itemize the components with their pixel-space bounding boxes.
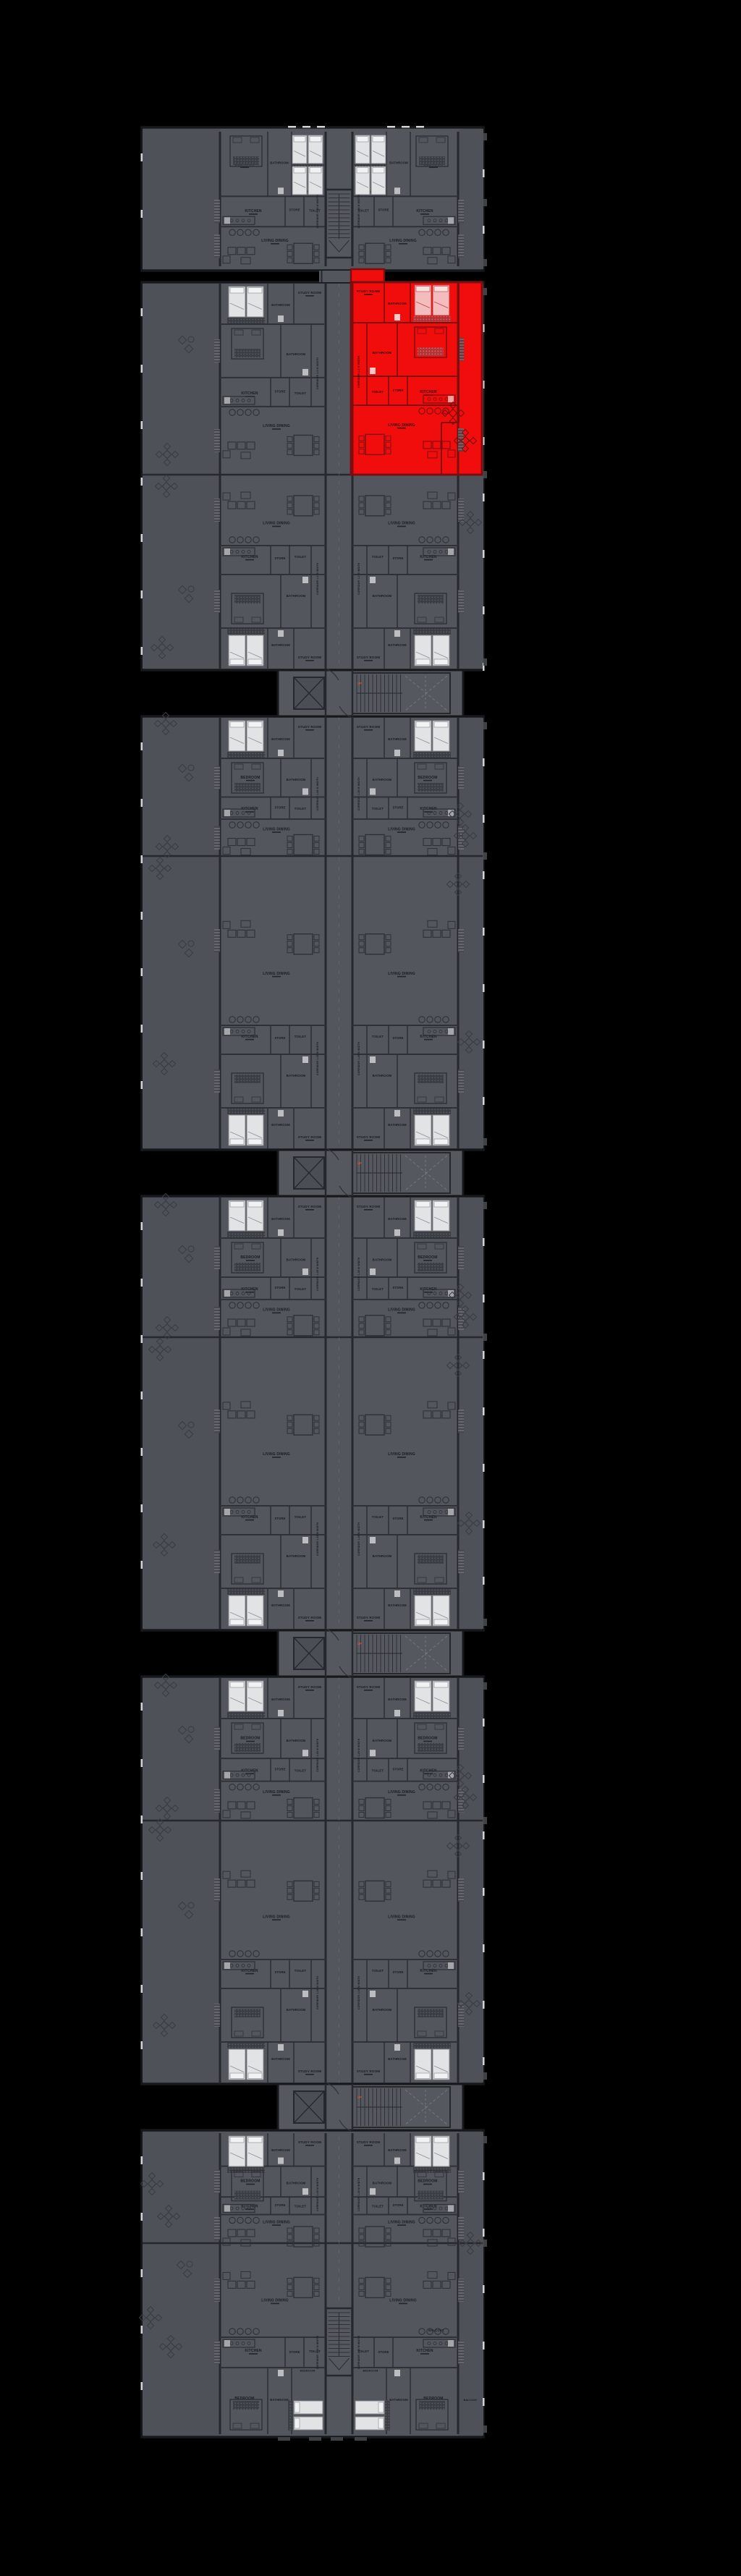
window-tick (141, 1391, 143, 1399)
room-label: BATHROOM (271, 1217, 290, 1221)
balcony-divider (483, 471, 487, 478)
dimension-text (249, 213, 258, 215)
stair-up-label: UP (357, 1161, 362, 1165)
window-tick (141, 590, 143, 598)
room-label: CORRIDOR 1.28 M WIDTH (316, 2336, 319, 2370)
sink-icon (370, 368, 376, 374)
balcony-divider (483, 852, 487, 860)
sink-icon (394, 1110, 400, 1117)
dimension-text (364, 1690, 373, 1691)
window-icon (458, 1878, 464, 1902)
dimension-text (305, 2074, 314, 2075)
window-tick (141, 2041, 143, 2049)
balcony-divider (483, 1682, 487, 1690)
balcony-divider (483, 1619, 487, 1626)
dimension-text (245, 1973, 254, 1975)
window-icon (214, 1069, 220, 1093)
room-label: STUDY ROOM (298, 2140, 322, 2144)
window-icon (458, 1069, 464, 1093)
rug (227, 752, 265, 758)
window-icon (214, 929, 220, 952)
dimension-text (399, 2303, 407, 2305)
rug (227, 629, 265, 635)
window-icon (458, 2279, 464, 2302)
room-label: TOILET (372, 2204, 384, 2208)
window-tick (141, 210, 143, 218)
balcony-divider (483, 288, 487, 295)
balcony-divider (483, 2240, 487, 2247)
dimension-text (397, 1795, 406, 1796)
dimension-text (305, 295, 314, 297)
room-label: STUDY ROOM (357, 656, 381, 659)
window-tick (483, 1775, 485, 1783)
stair-core: UP (278, 669, 463, 717)
window-icon (214, 2170, 220, 2193)
window-tick (141, 1872, 143, 1880)
floor-section-s0: BEDROOMBATHROOMBEDROOMTOILETSTOREKITCHEN… (141, 127, 488, 271)
dimension-text (397, 1313, 406, 1314)
room-label: CORRIDOR 1.2 M WIDTH (316, 357, 319, 390)
sink-icon (302, 1750, 308, 1756)
rug (413, 1232, 451, 1237)
room-label: LIVING DINING (263, 424, 290, 428)
room-label: TOILET (295, 807, 307, 810)
dimension-text (246, 1260, 255, 1261)
rug (227, 318, 265, 323)
room-label: BATHROOM (287, 1554, 306, 1558)
room-label: STORE (392, 556, 403, 560)
room-label: BATHROOM (271, 737, 290, 741)
dimension-text (397, 428, 406, 429)
rug (413, 752, 451, 758)
stair-up-label: UP (357, 1642, 362, 1645)
stair-up-label: UP (357, 682, 362, 685)
dimension-text (364, 2074, 373, 2075)
window-icon (214, 1789, 220, 1813)
window-icon (214, 235, 220, 258)
room-label: LIVING DINING (388, 1915, 415, 1919)
sink-icon (370, 1750, 376, 1756)
window-tick (141, 1816, 143, 1823)
window-icon (214, 766, 220, 789)
window-tick (141, 2382, 143, 2390)
window-tick (141, 1928, 143, 1936)
room-label: TOILET (372, 1768, 384, 1772)
room-label: BATHROOM (271, 2057, 290, 2061)
room-label: LIVING DINING (263, 1452, 290, 1457)
window-tick (483, 1719, 485, 1726)
window-tick (141, 855, 143, 863)
dimension-text (272, 1919, 281, 1920)
room-label: LIVING DINING (388, 1790, 415, 1795)
window-tick (141, 799, 143, 807)
dimension-text (246, 2184, 255, 2185)
room-label: BATHROOM (271, 1603, 290, 1607)
sink-icon (394, 1590, 400, 1597)
dimension-text (364, 1209, 373, 1211)
sink-icon (394, 1229, 400, 1236)
window-icon (214, 2341, 220, 2364)
window-tick (402, 126, 410, 128)
entrance-step (278, 2437, 290, 2441)
dimension-text (399, 243, 407, 245)
room-label: STUDY ROOM (357, 2069, 381, 2073)
room-label: TOILET (295, 1768, 307, 1772)
sink-icon (302, 1268, 308, 1275)
room-label: BEDROOM (423, 2397, 443, 2401)
window-tick (483, 1520, 485, 1528)
window-icon (214, 1727, 220, 1750)
room-label: BATHROOM (373, 778, 392, 781)
room-label: BEDROOM (418, 776, 437, 780)
room-label: CORRIDOR 1.28 M WIDTH (316, 777, 319, 811)
dimension-text (305, 1209, 314, 1211)
sink-icon (278, 630, 284, 637)
sink-icon (278, 750, 284, 756)
window-tick (141, 912, 143, 920)
sink-icon (278, 1590, 284, 1597)
sink-icon (394, 2044, 400, 2051)
dimension-text (246, 1741, 255, 1742)
window-icon (214, 339, 220, 363)
rug (413, 2043, 451, 2048)
room-label: BATHROOM (287, 2008, 306, 2012)
room-label: CORRIDOR 1.28 M WIDTH (316, 1041, 319, 1075)
sink-icon (370, 788, 376, 795)
room-label: STORE (274, 2203, 285, 2207)
window-icon (458, 1246, 464, 1269)
room-label: STUDY ROOM (357, 1205, 381, 1208)
dimension-text (305, 660, 314, 661)
room-label: BATHROOM (373, 1739, 392, 1742)
dimension-text (272, 976, 281, 978)
window-tick (483, 984, 485, 992)
staircase-icon (326, 2308, 352, 2376)
room-label: BATHROOM (287, 2181, 306, 2185)
window-tick (141, 1504, 143, 1512)
window-tick (483, 1238, 485, 1246)
dimension-text (272, 1457, 281, 1458)
room-label: BATHROOM (373, 2181, 392, 2185)
window-tick (141, 308, 143, 316)
dimension-text (272, 1795, 281, 1796)
room-label: CORRIDOR 1.28 M WIDTH (357, 777, 360, 811)
window-tick (317, 126, 325, 128)
dimension-text (424, 559, 433, 561)
room-label: CORRIDOR 1.28 M WIDTH (316, 1522, 319, 1556)
dimension-text (364, 1620, 373, 1622)
room-label: BEDROOM (240, 1255, 260, 1260)
room-label: BATHROOM (271, 1123, 290, 1127)
room-label: BATHROOM (373, 351, 392, 355)
room-label: BATHROOM (388, 1123, 407, 1127)
window-tick (483, 2057, 485, 2065)
dimension-text (272, 526, 281, 528)
balcony-divider (483, 1138, 487, 1145)
room-label: CORRIDOR 1.28 M WIDTH (357, 1738, 360, 1772)
terrace (143, 1678, 220, 2083)
balcony-divider (483, 1817, 487, 1824)
room-label: CORRIDOR 1.28 M WIDTH (357, 1257, 360, 1291)
rug (413, 1589, 451, 1595)
room-label: TOILET (372, 390, 384, 394)
dimension-text (397, 526, 406, 528)
room-label: STORE (392, 1286, 403, 1289)
window-tick (483, 1041, 485, 1048)
room-label: BATHROOM (388, 2057, 407, 2061)
dimension-text (420, 213, 429, 215)
window-tick (141, 534, 143, 542)
rug (227, 1712, 265, 1718)
room-label: CORRIDOR 1.28 M WIDTH (357, 1975, 360, 2009)
room-label: LIVING DINING (388, 1308, 415, 1313)
room-label: STUDY ROOM (357, 289, 381, 293)
sink-icon (370, 2188, 376, 2195)
room-label: BALCONY (464, 2399, 478, 2402)
room-label: TOILET (372, 1035, 384, 1038)
room-label: STORE (274, 556, 285, 560)
balcony-divider (483, 1334, 487, 1341)
window-icon (214, 1550, 220, 1573)
dimension-text (397, 976, 406, 978)
elevator-icon (294, 677, 324, 709)
balcony-divider (483, 658, 487, 666)
window-tick (483, 1577, 485, 1585)
window-tick (483, 2398, 485, 2406)
room-label: STUDY ROOM (298, 291, 322, 295)
room-label: CORRIDOR 1.28 M WIDTH (316, 1257, 319, 1291)
selected-apartment-highlight[interactable]: STUDY ROOMBATHROOMBATHROOMBEDROOMTOILETS… (351, 269, 482, 475)
room-label: STORE (274, 1768, 285, 1771)
window-icon (458, 235, 464, 258)
room-label: LIVING DINING (388, 2220, 415, 2224)
window-tick (483, 2001, 485, 2009)
balcony-divider (483, 199, 487, 206)
room-label: STUDY ROOM (298, 656, 322, 659)
room-label: CORRIDOR 1.2 M WIDTH (316, 562, 319, 595)
window-tick (141, 2213, 143, 2221)
room-label: CORRIDOR 1.28 M WIDTH (316, 1975, 319, 2009)
window-icon (458, 929, 464, 952)
sink-icon (278, 187, 284, 194)
floor-section-s2: STUDY ROOMBATHROOMBATHROOMBEDROOMTOILETS… (141, 712, 488, 1150)
sink-icon (394, 630, 400, 637)
balcony-divider (483, 1202, 487, 1209)
window-tick (483, 871, 485, 879)
window-tick (483, 1295, 485, 1302)
dimension-text (305, 1140, 314, 1141)
rug (227, 1232, 265, 1237)
sink-icon (302, 2188, 308, 2195)
sink-icon (394, 750, 400, 756)
room-label: STUDY ROOM (357, 1135, 381, 1139)
window-icon (214, 590, 220, 613)
room-label: BATHROOM (388, 643, 407, 647)
room-label: STORE (274, 1517, 285, 1520)
room-label: TOILET (295, 2204, 307, 2208)
room-label: LIVING DINING (263, 522, 290, 526)
window-tick (141, 2326, 143, 2334)
room-label: KITCHEN (241, 2204, 258, 2208)
room-label: STORE (392, 1517, 403, 1520)
sink-icon (394, 314, 400, 321)
window-icon (458, 1789, 464, 1813)
room-label: CORRIDOR 1.28 M WIDTH (316, 2177, 319, 2211)
dimension-text (272, 428, 281, 430)
room-label: CORRIDOR 1.2 M WIDTH (357, 356, 360, 389)
room-label: BATHROOM (373, 2008, 392, 2012)
window-tick (483, 815, 485, 823)
room-label: STUDY ROOM (298, 725, 322, 729)
dimension-text (397, 1457, 406, 1458)
room-label: LIVING DINING (263, 1915, 290, 1919)
balcony-divider (483, 2425, 487, 2433)
window-tick (288, 126, 296, 128)
rug (227, 2043, 265, 2048)
room-label: TOILET (372, 1287, 384, 1291)
terrace (143, 1198, 220, 1629)
room-label: LIVING DINING (261, 2299, 289, 2303)
room-label: CORRIDOR 1.28 M WIDTH (316, 195, 319, 229)
dimension-text (424, 1039, 433, 1041)
room-label: BEDROOM (240, 1737, 260, 1741)
window-icon (214, 2217, 220, 2240)
room-label: LIVING DINING (388, 423, 415, 428)
dimension-text (272, 1313, 281, 1314)
window-tick (141, 2269, 143, 2277)
sink-icon (370, 1537, 376, 1543)
room-label: STORE (289, 2350, 300, 2354)
sink-icon (278, 2158, 284, 2164)
window-icon (214, 2004, 220, 2027)
dimension-text (271, 2303, 279, 2305)
room-label: CORRIDOR 1.28 M WIDTH (357, 195, 360, 229)
room-label: CORRIDOR 1.2 M WIDTH (357, 562, 360, 595)
window-tick (483, 1831, 485, 1839)
balcony-divider (483, 259, 487, 266)
room-label: LIVING DINING (263, 972, 290, 976)
room-label: STORE (274, 390, 285, 394)
window-tick (141, 1222, 143, 1230)
window-tick (141, 1335, 143, 1343)
rug (413, 316, 451, 322)
window-tick (483, 606, 485, 614)
room-label: KITCHEN (245, 209, 262, 213)
floor-section-s3: STUDY ROOMBATHROOMBATHROOMBEDROOMTOILETS… (141, 1193, 488, 1630)
room-label: STORE (392, 805, 403, 809)
floor-section-s5: STUDY ROOMBATHROOMBATHROOMBEDROOMTOILETS… (139, 2130, 487, 2437)
room-label: LIVING DINING (261, 239, 289, 243)
room-label: LIVING DINING (263, 1308, 290, 1313)
room-label: BEDROOM (300, 2370, 316, 2373)
sink-icon (370, 1991, 376, 1997)
elevator-icon (294, 1157, 324, 1189)
room-label: BATHROOM (373, 1074, 392, 1077)
window-tick (141, 1703, 143, 1711)
room-label: STORE (392, 389, 403, 392)
window-tick (141, 153, 143, 161)
room-label: CORRIDOR 1.28 M WIDTH (357, 1522, 360, 1556)
room-label: LIVING DINING (263, 2220, 290, 2224)
entrance-step (355, 2437, 367, 2441)
room-label: BATHROOM (373, 594, 392, 598)
window-tick (483, 169, 485, 177)
entrance-step (331, 2437, 343, 2441)
dimension-text (364, 729, 373, 731)
window-tick (141, 1759, 143, 1767)
sink-icon (278, 1229, 284, 1236)
window-tick (141, 2156, 143, 2164)
room-label: BATHROOM (388, 1603, 407, 1607)
room-label: BATHROOM (287, 1739, 306, 1742)
window-tick (483, 493, 485, 501)
room-label: STORE (289, 208, 300, 211)
terrace (143, 284, 220, 669)
sink-icon (302, 369, 308, 376)
room-label: STORE (392, 1768, 403, 1771)
stair-up-label: UP (357, 2096, 362, 2099)
window-tick (141, 742, 143, 750)
dimension-text (245, 559, 254, 561)
stair-core: UP (278, 1630, 463, 1677)
window-tick (141, 1279, 143, 1287)
room-label: KITCHEN (420, 390, 437, 394)
room-label: STORE (392, 1036, 403, 1040)
sink-icon (278, 2044, 284, 2051)
room-label: KITCHEN (241, 391, 258, 396)
window-tick (387, 126, 395, 128)
window-tick (483, 2285, 485, 2293)
room-label: STORE (274, 1036, 285, 1040)
window-tick (141, 647, 143, 655)
room-label: BATHROOM (373, 1554, 392, 1558)
dimension-text (364, 2145, 373, 2146)
window-tick (141, 1025, 143, 1033)
room-label: BATHROOM (388, 2148, 407, 2152)
room-label: STUDY ROOM (298, 1135, 322, 1139)
sink-icon (394, 1710, 400, 1716)
window-tick (141, 421, 143, 429)
sink-icon (278, 1710, 284, 1716)
room-label: BATHROOM (287, 1074, 306, 1077)
sink-icon (394, 187, 400, 194)
room-label: LIVING DINING (388, 827, 415, 831)
dimension-text (249, 2353, 258, 2355)
room-label: TOILET (372, 807, 384, 810)
room-label: BATHROOM (287, 1258, 306, 1261)
rug (413, 629, 451, 635)
room-label: BEDROOM (234, 2397, 254, 2401)
dimension-text (397, 1919, 406, 1920)
room-label: BATHROOM (389, 161, 408, 165)
room-label: BATHROOM (287, 594, 306, 598)
dimension-text (424, 1973, 433, 1975)
dimension-text (245, 1520, 254, 1521)
balcony-divider (483, 722, 487, 729)
window-icon (458, 1550, 464, 1573)
room-label: KITCHEN (245, 2349, 262, 2353)
window-icon (458, 590, 464, 613)
dimension-text (364, 660, 373, 661)
room-label: KITCHEN (416, 2349, 433, 2353)
window-icon (458, 1727, 464, 1750)
window-tick (483, 2172, 485, 2180)
window-tick (483, 928, 485, 936)
room-label: STUDY ROOM (298, 1205, 322, 1208)
room-label: STUDY ROOM (357, 2140, 381, 2144)
stair-core: UP (278, 2083, 463, 2131)
room-label: STUDY ROOM (298, 1616, 322, 1619)
